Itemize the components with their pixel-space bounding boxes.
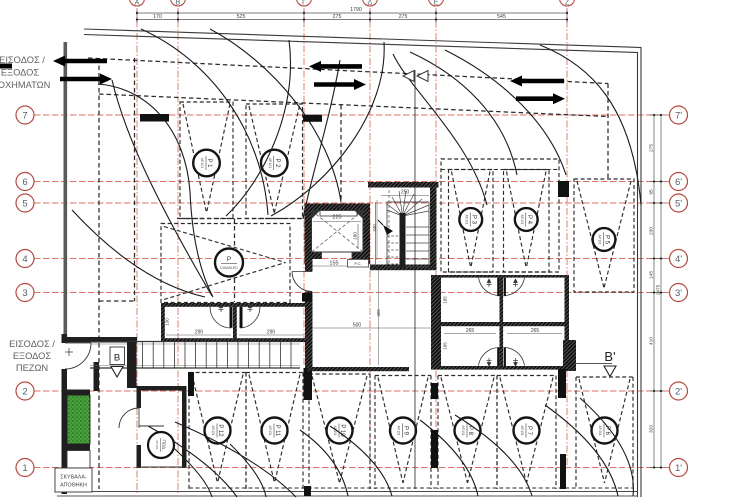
svg-text:ΕΞΟΔΟΣ: ΕΞΟΔΟΣ [1, 68, 40, 78]
svg-text:P 5: P 5 [604, 235, 610, 245]
svg-text:P 11: P 11 [274, 425, 280, 437]
svg-text:4: 4 [22, 254, 27, 265]
svg-text:405: 405 [376, 309, 381, 317]
svg-text:4': 4' [675, 254, 682, 265]
svg-text:ΑΡ.101: ΑΡ.101 [464, 214, 468, 224]
svg-text:525: 525 [237, 14, 246, 20]
svg-text:340: 340 [372, 224, 377, 232]
svg-text:185: 185 [443, 296, 448, 304]
svg-text:B': B' [604, 349, 615, 364]
svg-text:P 6: P 6 [604, 426, 610, 436]
svg-text:545: 545 [497, 14, 506, 20]
svg-text:410: 410 [649, 337, 655, 345]
svg-text:DISABLED: DISABLED [220, 266, 238, 270]
svg-text:ΑΡ.101: ΑΡ.101 [200, 158, 204, 168]
svg-text:500: 500 [353, 323, 362, 329]
svg-text:6: 6 [22, 177, 27, 188]
svg-text:P: P [227, 256, 231, 263]
svg-text:95: 95 [649, 189, 655, 195]
svg-text:1: 1 [22, 463, 27, 474]
svg-text:5: 5 [22, 198, 27, 209]
svg-text:ΑΡ.101: ΑΡ.101 [461, 425, 465, 435]
svg-text:P 7: P 7 [526, 426, 532, 436]
svg-text:ΑΠΟΘΗΚΗ: ΑΠΟΘΗΚΗ [60, 483, 87, 489]
svg-text:185: 185 [443, 342, 448, 350]
svg-text:ΑΡ.101: ΑΡ.101 [598, 425, 602, 435]
svg-text:230: 230 [649, 227, 655, 235]
svg-text:ΟΧΗΜΑΤΩΝ: ΟΧΗΜΑΤΩΝ [0, 80, 50, 90]
svg-text:7': 7' [675, 110, 682, 121]
svg-text:ΠΟΔ.: ΠΟΔ. [162, 440, 167, 451]
svg-text:275: 275 [649, 144, 655, 152]
svg-text:ΑΡ.101: ΑΡ.101 [268, 158, 272, 168]
svg-text:3': 3' [675, 288, 682, 299]
svg-text:265: 265 [531, 328, 540, 334]
svg-text:ΕΞΟΔΟΣ: ΕΞΟΔΟΣ [13, 351, 52, 361]
svg-text:ΑΡ.101: ΑΡ.101 [397, 425, 401, 435]
svg-text:P 8: P 8 [467, 426, 473, 436]
svg-text:Γ: Γ [302, 0, 306, 7]
svg-text:2': 2' [675, 386, 682, 397]
svg-text:320: 320 [649, 425, 655, 433]
svg-text:265: 265 [466, 328, 475, 334]
svg-text:ΕΙΣΟΔΟΣ /: ΕΙΣΟΔΟΣ / [0, 55, 45, 65]
svg-text:1475: 1475 [656, 284, 662, 295]
svg-text:ΑΡ.101: ΑΡ.101 [211, 425, 215, 435]
svg-text:P 4: P 4 [526, 215, 532, 225]
svg-text:ΑΡ.101: ΑΡ.101 [155, 440, 159, 450]
svg-text:5': 5' [675, 198, 682, 209]
svg-text:1': 1' [675, 463, 682, 474]
svg-text:180: 180 [353, 232, 358, 240]
svg-text:ΑΡ.101: ΑΡ.101 [598, 234, 602, 244]
svg-text:275: 275 [399, 14, 408, 20]
svg-text:3: 3 [22, 288, 27, 299]
svg-text:ΕΙΣΟΔΟΣ /: ΕΙΣΟΔΟΣ / [9, 339, 55, 349]
svg-text:B: B [114, 353, 120, 364]
svg-text:250: 250 [401, 190, 410, 196]
svg-text:170: 170 [153, 14, 162, 20]
svg-text:P 3: P 3 [470, 215, 476, 225]
svg-text:P 12: P 12 [217, 424, 223, 437]
svg-text:P 2: P 2 [274, 159, 280, 169]
svg-text:P 1: P 1 [206, 159, 212, 169]
svg-text:ΑΡ.101: ΑΡ.101 [268, 425, 272, 435]
svg-text:290: 290 [195, 330, 204, 336]
svg-text:7: 7 [22, 110, 27, 121]
svg-text:155: 155 [329, 261, 338, 267]
svg-text:P 9: P 9 [403, 426, 409, 436]
svg-text:Ε: Ε [434, 0, 439, 7]
svg-text:145: 145 [649, 271, 655, 279]
svg-text:ΑΡ.101: ΑΡ.101 [520, 214, 524, 224]
svg-text:275: 275 [333, 14, 342, 20]
svg-text:225: 225 [332, 215, 341, 221]
svg-text:130: 130 [165, 318, 170, 326]
svg-text:Β: Β [176, 0, 181, 7]
svg-text:Α: Α [135, 0, 140, 7]
svg-text:Δ: Δ [368, 0, 373, 7]
svg-text:1790: 1790 [350, 7, 362, 13]
svg-text:2: 2 [22, 386, 27, 397]
svg-text:6': 6' [675, 177, 682, 188]
svg-text:290: 290 [267, 330, 276, 336]
svg-text:ΣΚΥΒΑΛΑ-: ΣΚΥΒΑΛΑ- [60, 475, 86, 481]
svg-text:Ζ: Ζ [565, 0, 570, 7]
svg-text:ΑΡ.101: ΑΡ.101 [520, 425, 524, 435]
svg-text:ΠΕΖΩΝ: ΠΕΖΩΝ [16, 363, 48, 373]
svg-text:P.C.: P.C. [354, 261, 361, 266]
